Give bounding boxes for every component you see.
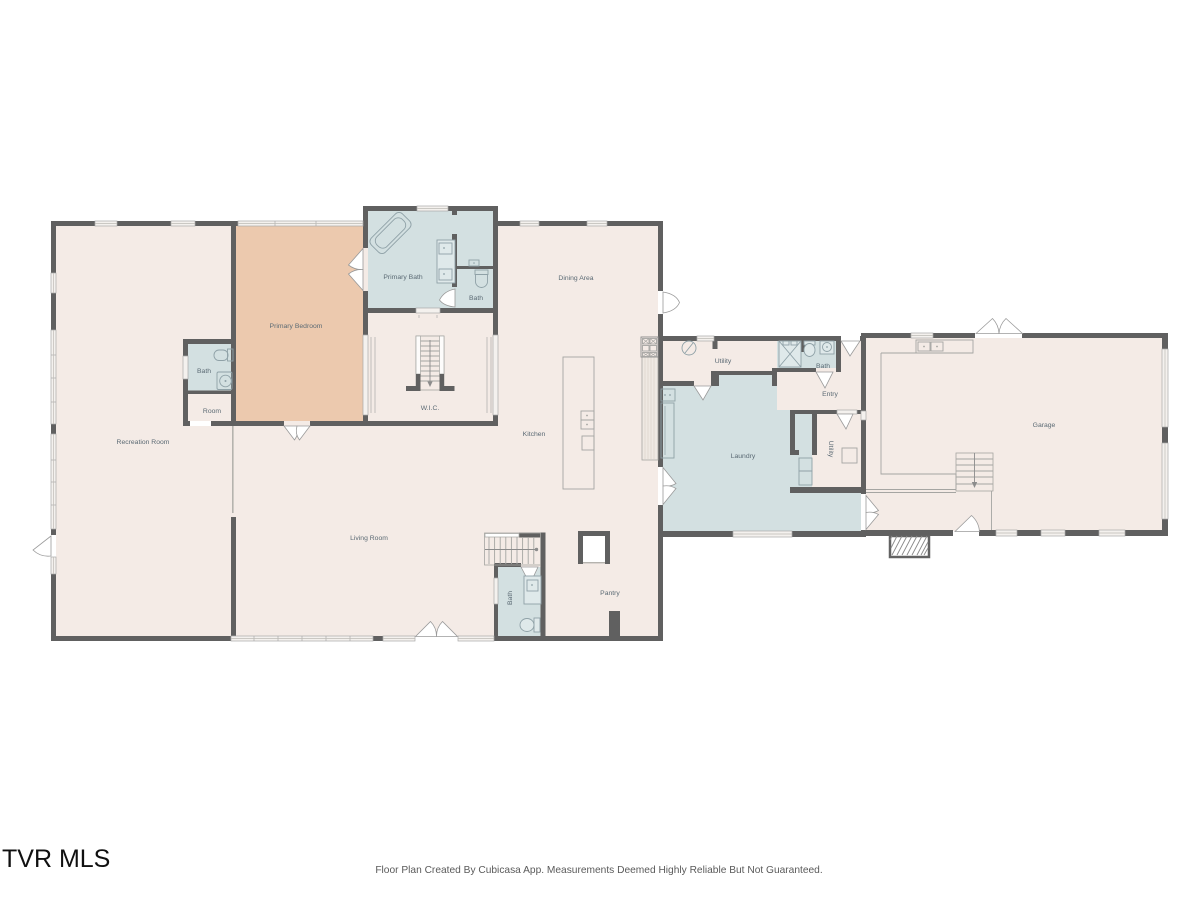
svg-text:Dining Area: Dining Area	[558, 275, 593, 282]
svg-text:Bath: Bath	[507, 591, 514, 605]
svg-text:Utility: Utility	[827, 441, 834, 458]
svg-text:Room: Room	[203, 408, 221, 415]
svg-text:Bath: Bath	[469, 295, 483, 302]
svg-text:Bath: Bath	[197, 368, 211, 375]
svg-text:Kitchen: Kitchen	[523, 431, 546, 438]
svg-text:Primary Bedroom: Primary Bedroom	[270, 323, 323, 330]
svg-text:Entry: Entry	[822, 391, 838, 398]
svg-text:Living Room: Living Room	[350, 535, 388, 542]
svg-text:TVR MLS: TVR MLS	[2, 845, 110, 873]
svg-text:Primary Bath: Primary Bath	[383, 274, 423, 281]
svg-text:W.I.C.: W.I.C.	[421, 405, 440, 412]
svg-text:Recreation Room: Recreation Room	[117, 439, 170, 446]
svg-text:Laundry: Laundry	[731, 453, 756, 460]
svg-text:Pantry: Pantry	[600, 590, 620, 597]
svg-text:Bath: Bath	[816, 363, 830, 370]
svg-text:Floor Plan Created By Cubicasa: Floor Plan Created By Cubicasa App. Meas…	[375, 865, 822, 876]
svg-text:Garage: Garage	[1033, 422, 1056, 429]
svg-text:Utility: Utility	[715, 358, 732, 365]
